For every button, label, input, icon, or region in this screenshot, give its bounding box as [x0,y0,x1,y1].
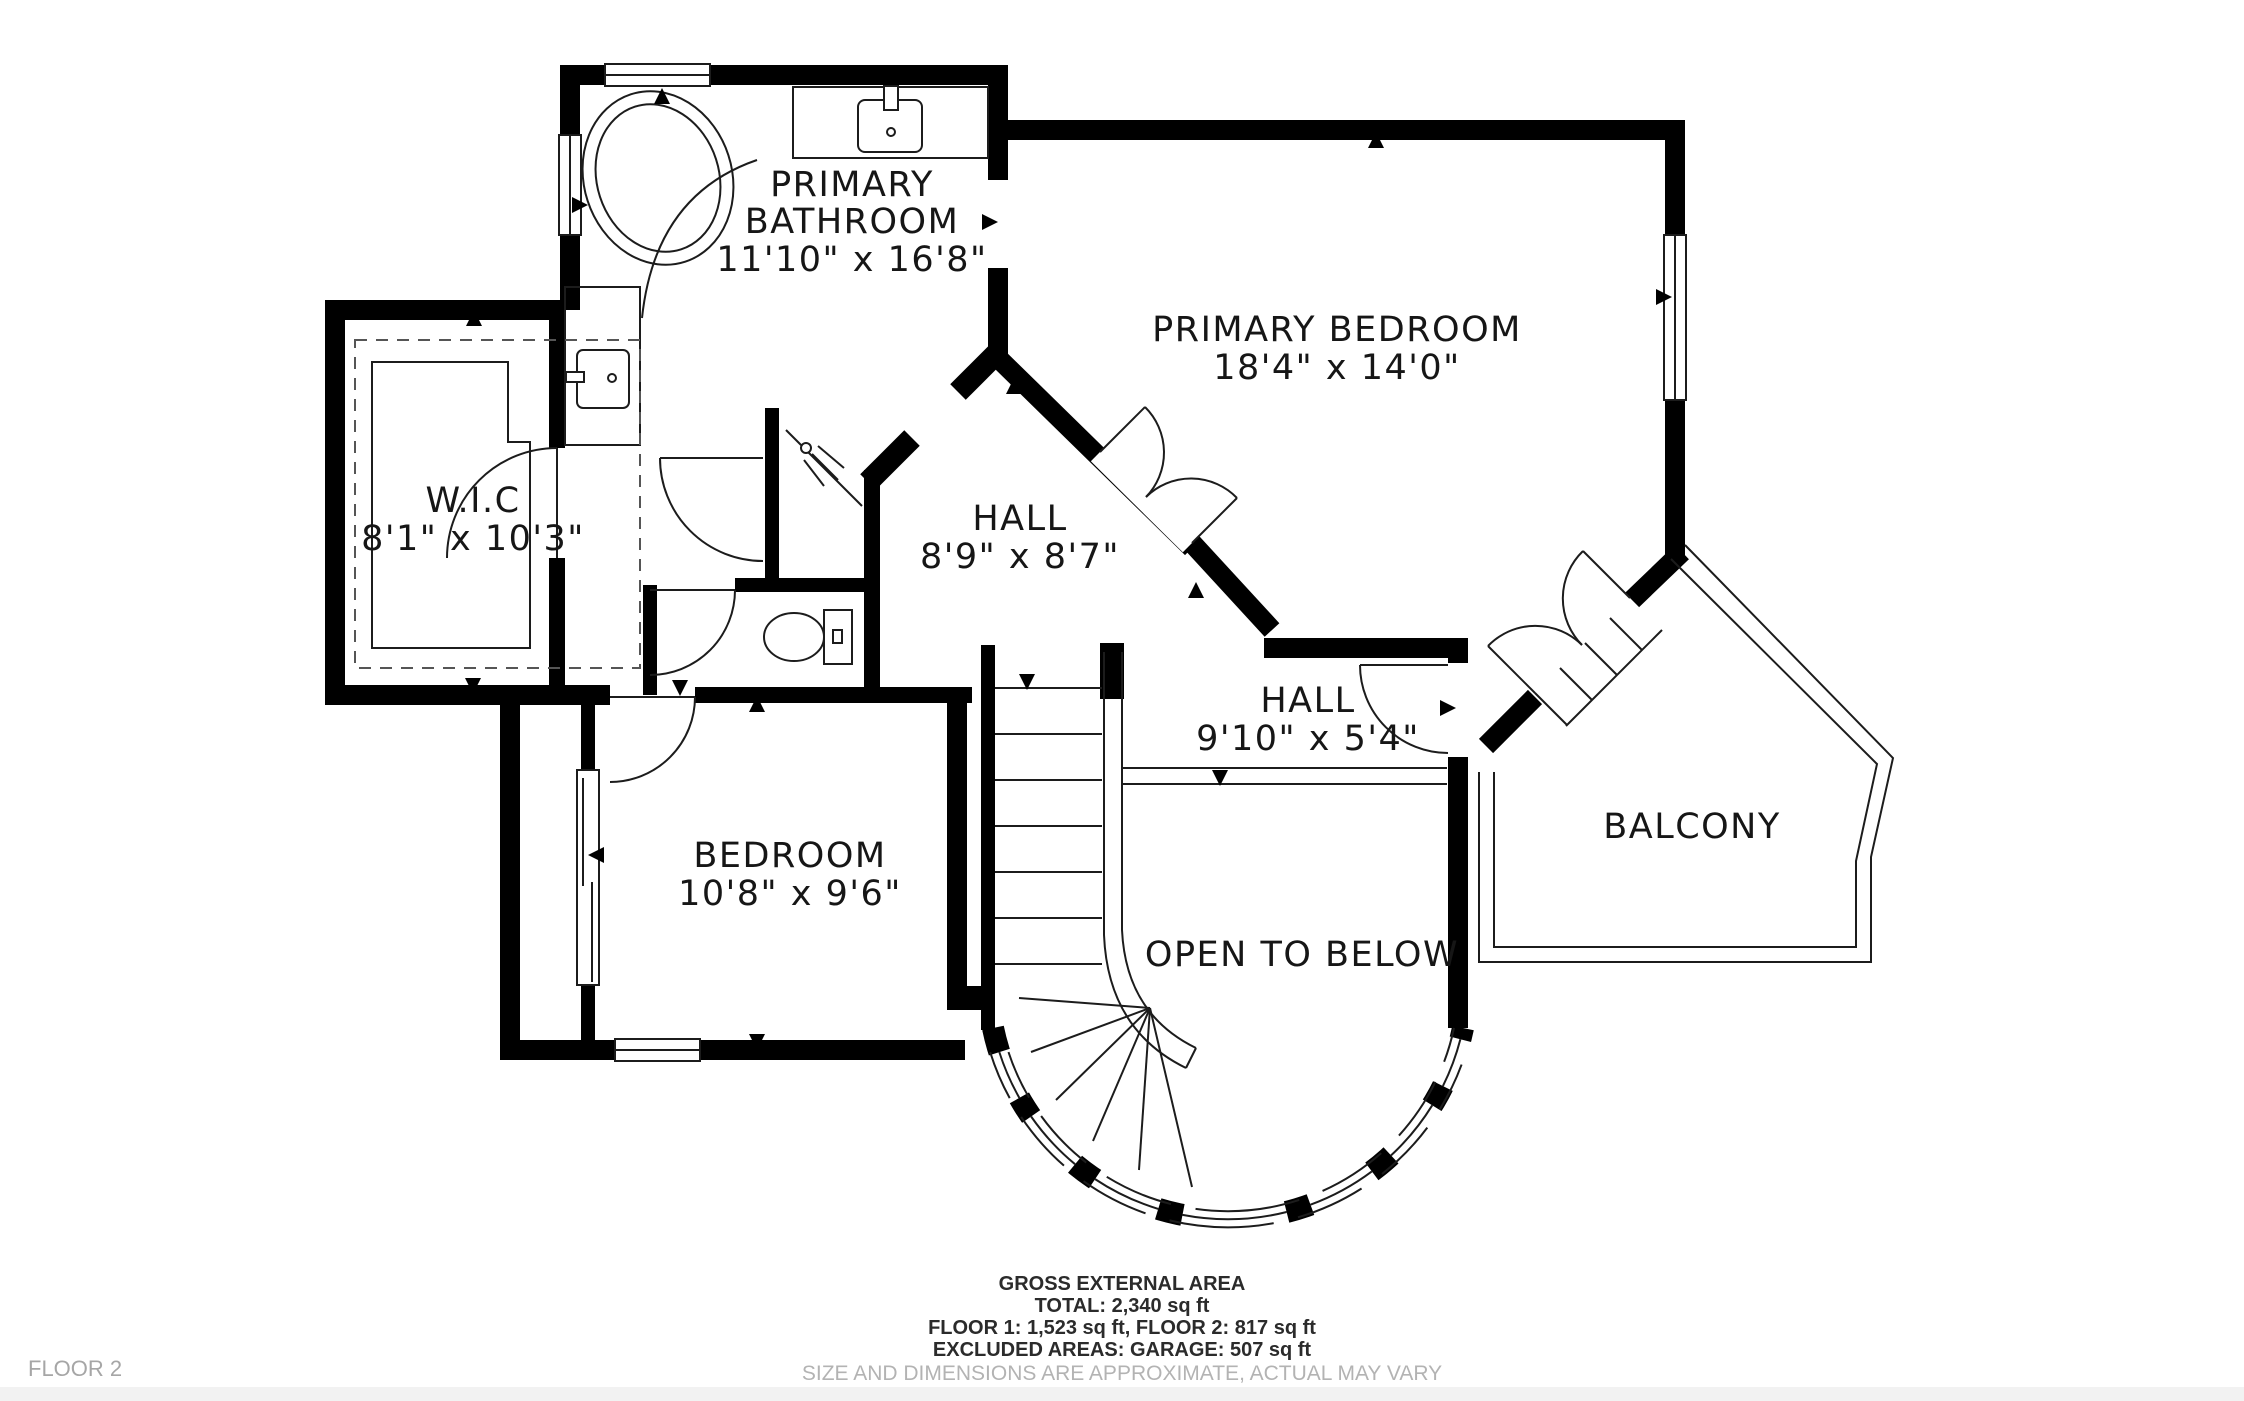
label-primary-bedroom: PRIMARY BEDROOM [1152,310,1522,350]
toilet-icon [764,610,852,664]
label-primary-bathroom: PRIMARY [770,165,934,205]
label-balcony: BALCONY [1603,807,1781,847]
dims-wic: 8'1" x 10'3" [361,519,585,559]
sink-icon [793,86,988,158]
footer-excluded: EXCLUDED AREAS: GARAGE: 507 sq ft [933,1339,1312,1361]
dims-bedroom: 10'8" x 9'6" [678,874,902,914]
label-open-to-below: OPEN TO BELOW [1145,935,1459,975]
open-to-below-edge [1122,768,1447,784]
floor-number-label: FLOOR 2 [28,1356,122,1381]
sliding-door-icon [577,770,599,985]
balcony-outline [1479,545,1893,962]
footer-floors: FLOOR 1: 1,523 sq ft, FLOOR 2: 817 sq ft [928,1317,1316,1339]
floor-plan-canvas: PRIMARY BATHROOM 11'10" x 16'8" PRIMARY … [0,0,2244,1401]
dims-hall-upper: 8'9" x 8'7" [920,537,1120,577]
label-bedroom: BEDROOM [693,836,886,876]
page-edge [0,1387,2244,1401]
label-hall-lower: HALL [1260,681,1355,721]
walls [325,65,1682,1219]
bay-windows-icon [984,1028,1472,1227]
floor-plan-page: PRIMARY BATHROOM 11'10" x 16'8" PRIMARY … [0,0,2244,1401]
dims-primary-bathroom: 11'10" x 16'8" [716,240,987,280]
footer-gross-area: GROSS EXTERNAL AREA [999,1273,1246,1295]
sink-icon [565,287,640,445]
footer-disclaimer: SIZE AND DIMENSIONS ARE APPROXIMATE, ACT… [802,1362,1442,1385]
label-wic: W.I.C [425,481,520,521]
label-hall-upper: HALL [972,499,1067,539]
dims-primary-bedroom: 18'4" x 14'0" [1213,348,1461,388]
footer-total: TOTAL: 2,340 sq ft [1035,1295,1210,1317]
label-primary-bathroom-2: BATHROOM [745,202,960,242]
footer: GROSS EXTERNAL AREA TOTAL: 2,340 sq ft F… [802,1273,1442,1385]
fixtures [355,71,988,668]
shower-icon [786,430,862,506]
dims-hall-lower: 9'10" x 5'4" [1196,719,1420,759]
